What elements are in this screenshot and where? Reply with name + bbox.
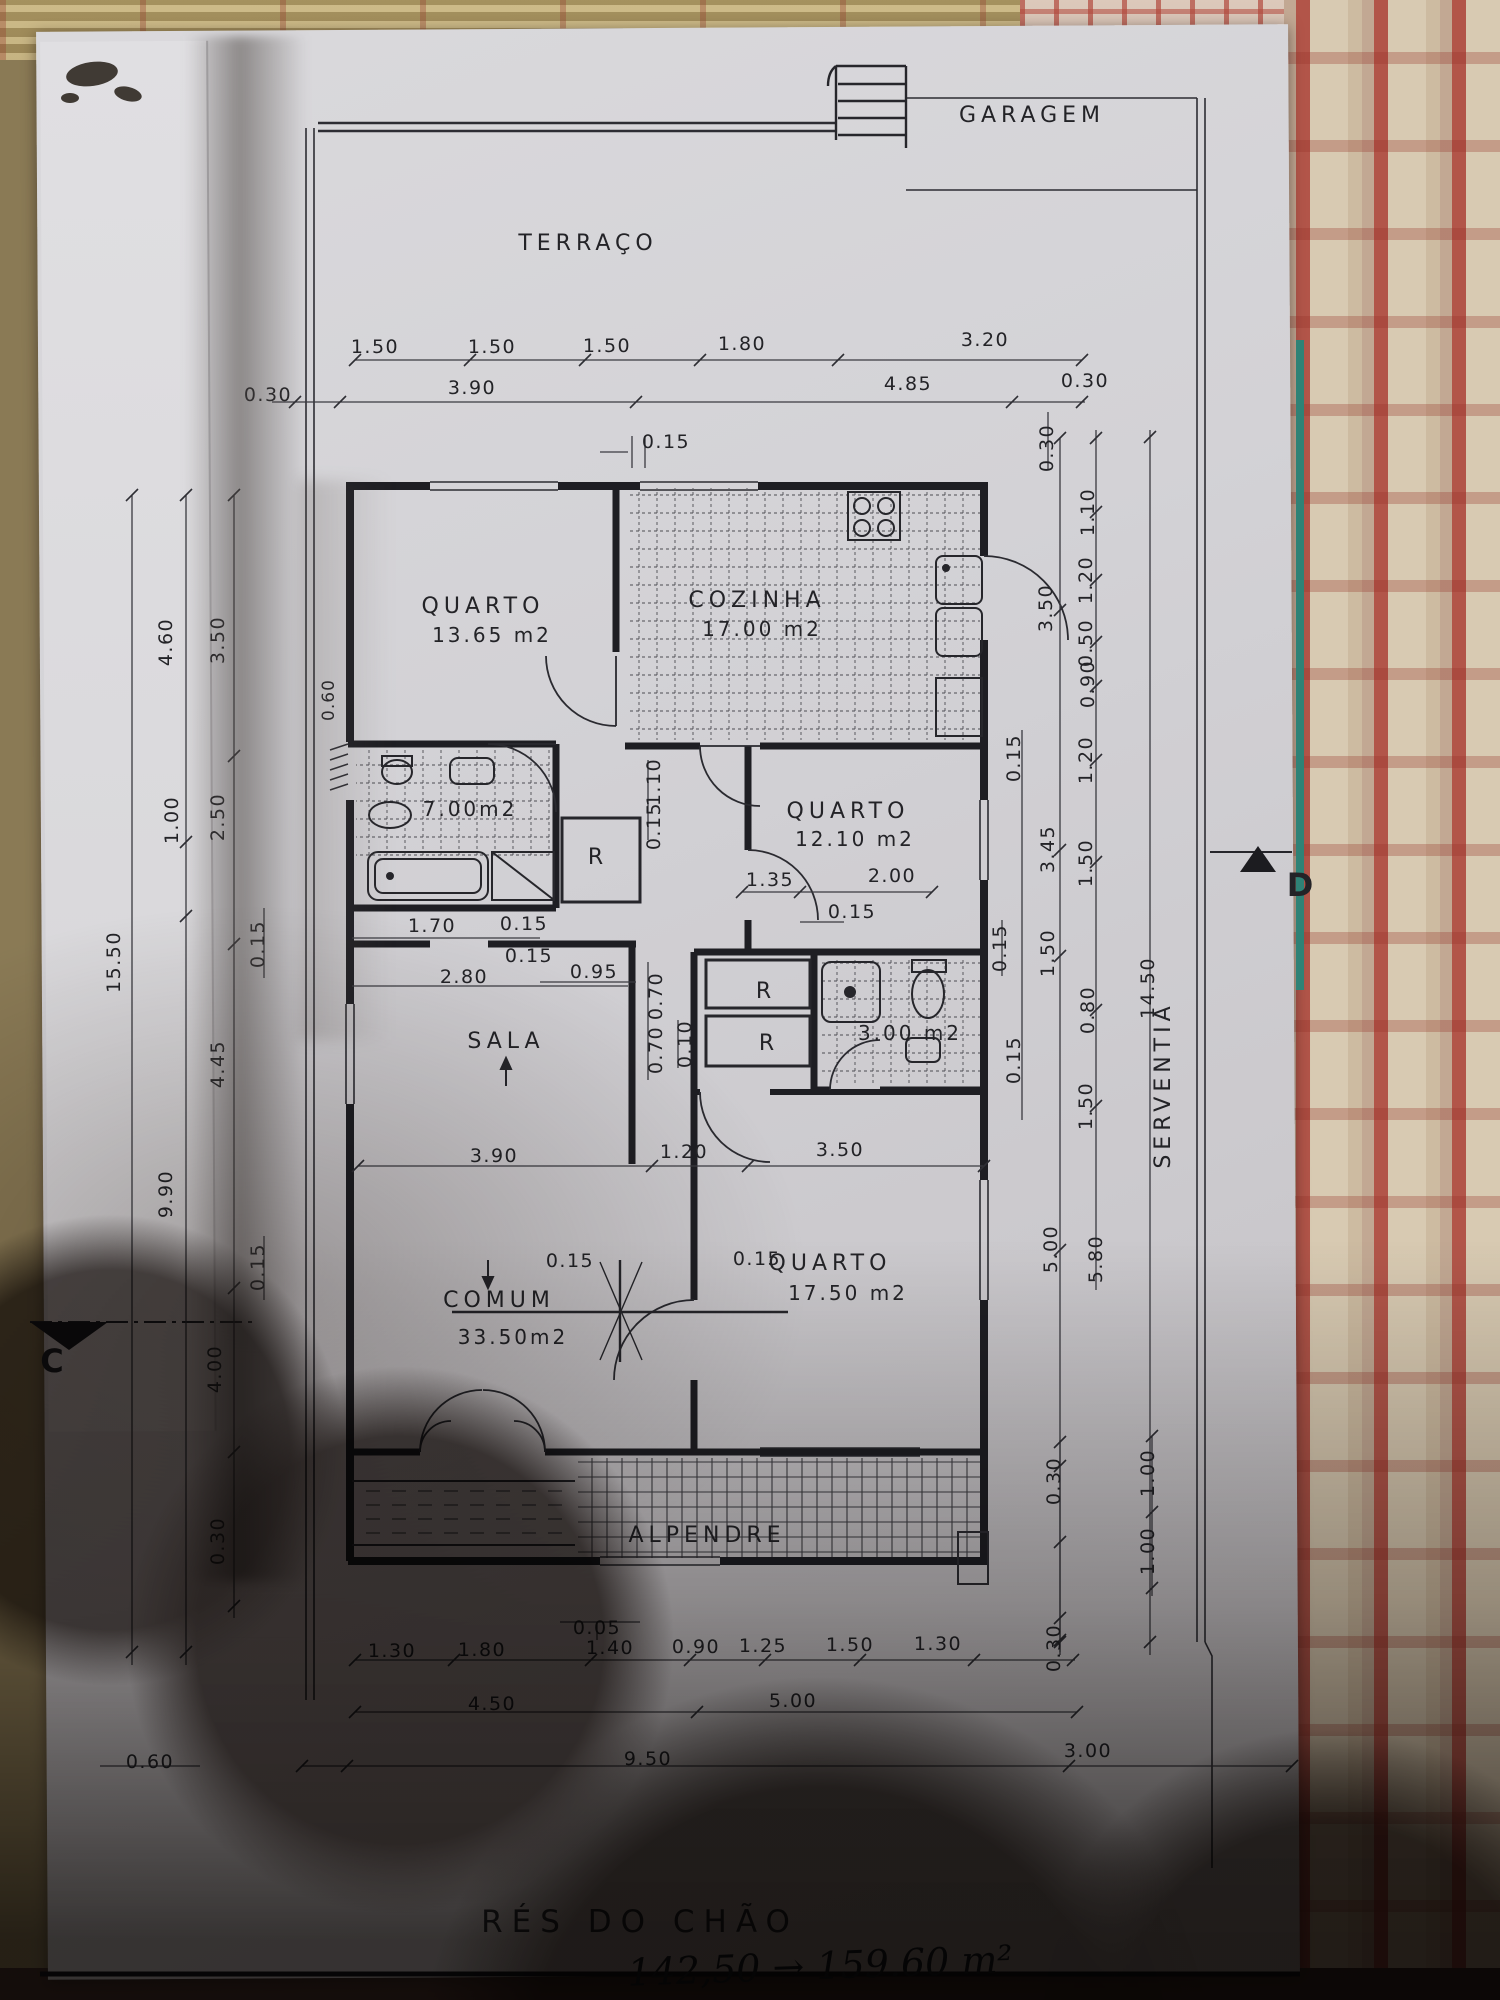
- photocopy-smudge: [186, 36, 306, 1581]
- area-label-wc1: 7.00m2: [423, 797, 518, 821]
- dim-label: 1.80: [458, 1639, 506, 1661]
- section-marker-c: C: [40, 1342, 63, 1380]
- room-label-serventia: SERVENTIA: [1151, 1001, 1176, 1168]
- dim-label: 1.20: [1075, 556, 1097, 604]
- room-label-cozinha: COZINHA: [688, 588, 825, 613]
- room-label-comum: COMUM: [443, 1288, 555, 1313]
- dim-label: 1.20: [1075, 736, 1097, 784]
- dim-label: 1.50: [583, 335, 631, 357]
- dim-label: 0.15: [643, 802, 665, 850]
- dim-label: 1.00: [1137, 1527, 1159, 1575]
- dim-label: 0.30: [1043, 1457, 1065, 1505]
- dim-label: 1.50: [468, 336, 516, 358]
- dim-label: 0.15: [642, 431, 690, 453]
- dim-label: 0.80: [1077, 986, 1099, 1034]
- dim-label: 0.70: [645, 1026, 667, 1074]
- area-label-quarto-2: 12.10 m2: [795, 827, 915, 851]
- cozinha-tile-hatch: [628, 488, 980, 740]
- dim-label: 1.10: [643, 758, 665, 806]
- dim-label: 4.85: [884, 373, 932, 395]
- dim-label: 9.90: [155, 1170, 177, 1218]
- section-d-triangle-icon: [1240, 846, 1276, 872]
- dim-label: 0.15: [989, 924, 1011, 972]
- dim-label: 2.80: [440, 966, 488, 988]
- dim-label: 1.30: [368, 1640, 416, 1662]
- dim-label: 3.90: [448, 377, 496, 399]
- photocopy-smudge-2: [300, 480, 390, 1040]
- dim-label: 15.50: [103, 931, 125, 993]
- dim-label: 3.45: [1037, 825, 1059, 873]
- area-label-comum: 33.50m2: [458, 1325, 568, 1349]
- area-label-wc2: 3.00 m2: [858, 1021, 962, 1045]
- dim-label: 0.05: [573, 1617, 621, 1639]
- room-label-garagem: GARAGEM: [959, 103, 1105, 128]
- dim-label: 0.30: [1036, 424, 1058, 472]
- dim-label: 14.50: [1137, 957, 1159, 1019]
- dim-label: 1.40: [586, 1637, 634, 1659]
- dim-label: 9.50: [624, 1748, 672, 1770]
- dim-label: 1.70: [408, 915, 456, 937]
- dim-label: 0.60: [126, 1751, 174, 1773]
- dim-label: 0.15: [733, 1248, 781, 1270]
- dim-label: 1.50: [351, 336, 399, 358]
- dim-label: 1.50: [1075, 1082, 1097, 1130]
- dim-label: 3.50: [1035, 584, 1057, 632]
- dim-label: 0.15: [1003, 1036, 1025, 1084]
- dim-label: 1.00: [1137, 1449, 1159, 1497]
- dim-label: 1.00: [161, 796, 183, 844]
- closet-label-r2: R: [756, 979, 776, 1004]
- room-label-quarto-2: QUARTO: [787, 799, 910, 824]
- dim-label: 0.70: [645, 972, 667, 1020]
- dim-label: 1.80: [718, 333, 766, 355]
- dim-label: 3.00: [1064, 1740, 1112, 1762]
- dim-label: 0.95: [570, 961, 618, 983]
- dim-label: 4.50: [468, 1693, 516, 1715]
- tape-marks: [61, 58, 143, 104]
- dim-label: 1.50: [826, 1634, 874, 1656]
- direction-arrows: [483, 1058, 511, 1288]
- stairs-icon: [828, 66, 906, 148]
- dim-label: 1.35: [746, 869, 794, 891]
- dim-label: 0.30: [1043, 1624, 1065, 1672]
- dim-label: 0.15: [1003, 734, 1025, 782]
- dim-label: 0.15: [828, 901, 876, 923]
- dim-label: 5.00: [1040, 1225, 1062, 1273]
- photo-of-floor-plan: GARAGEMTERRAÇOQUARTO13.65 m2COZINHA17.00…: [0, 0, 1500, 2000]
- dim-label: 0.30: [1061, 370, 1109, 392]
- area-label-cozinha: 17.00 m2: [702, 617, 822, 641]
- dim-label: 0.90: [1077, 660, 1099, 708]
- room-label-terraco: TERRAÇO: [517, 231, 657, 256]
- area-label-quarto-3: 17.50 m2: [788, 1281, 908, 1305]
- dim-label: 1.30: [914, 1633, 962, 1655]
- room-label-alpendre: ALPENDRE: [628, 1523, 785, 1548]
- plan-title: RÉS DO CHÃO: [450, 1904, 830, 1940]
- porch-hatch: [354, 1484, 572, 1542]
- dim-label: 5.80: [1085, 1235, 1107, 1283]
- dim-label: 1.25: [739, 1635, 787, 1657]
- dim-label: 2.00: [868, 865, 916, 887]
- dim-label: 1.20: [660, 1141, 708, 1163]
- dim-label: 5.00: [769, 1690, 817, 1712]
- section-marker-d: D: [1287, 866, 1314, 904]
- dim-label: 0.15: [500, 913, 548, 935]
- closet-label-r1: R: [588, 845, 608, 870]
- dim-label: 3.90: [470, 1145, 518, 1167]
- dim-label: 0.10: [674, 1020, 696, 1068]
- room-label-quarto-1: QUARTO: [422, 594, 545, 619]
- dim-label: 4.60: [155, 618, 177, 666]
- dim-label: 1.50: [1075, 839, 1097, 887]
- room-label-quarto-3: QUARTO: [769, 1251, 892, 1276]
- dim-label: 3.50: [816, 1139, 864, 1161]
- room-label-sala: SALA: [467, 1029, 544, 1054]
- closet-label-r3: R: [759, 1031, 779, 1056]
- dim-label: 1.10: [1077, 488, 1099, 536]
- dim-label: 0.90: [672, 1636, 720, 1658]
- dim-label: 0.15: [546, 1250, 594, 1272]
- dim-label: 3.20: [961, 329, 1009, 351]
- area-label-quarto-1: 13.65 m2: [432, 623, 552, 647]
- dim-label: 0.15: [505, 945, 553, 967]
- dim-label: 1.50: [1037, 929, 1059, 977]
